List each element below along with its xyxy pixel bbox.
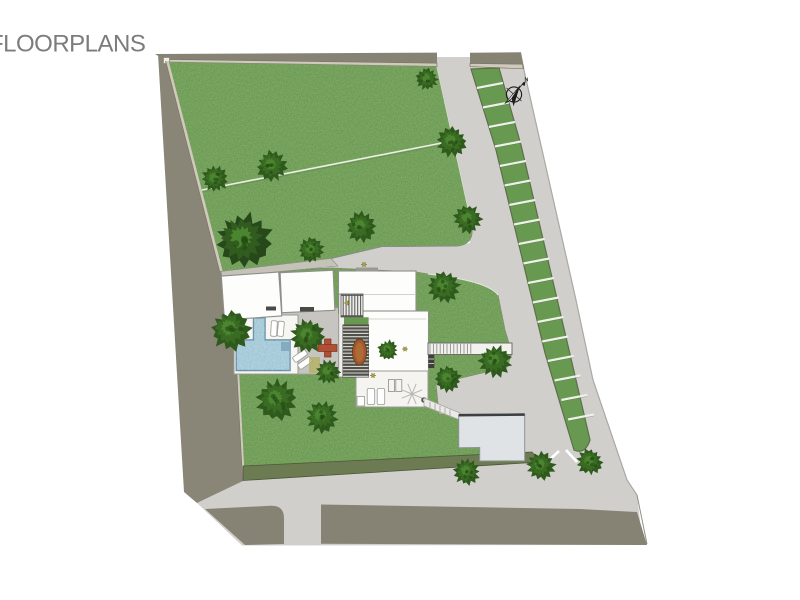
svg-text:FLOORPLANS: FLOORPLANS [0, 31, 145, 58]
